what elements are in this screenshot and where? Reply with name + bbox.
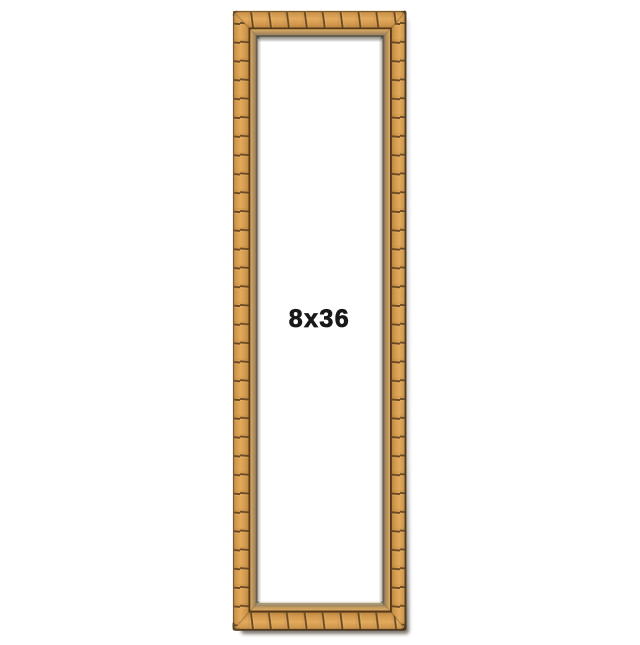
svg-text:8x36: 8x36 bbox=[289, 305, 350, 333]
